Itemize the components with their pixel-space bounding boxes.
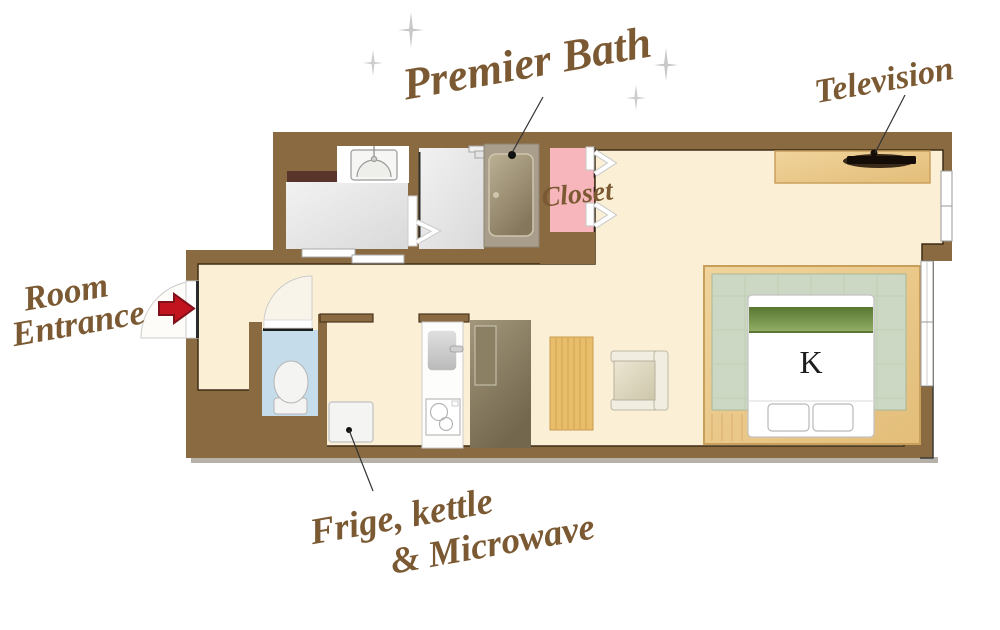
svg-text:Television: Television <box>812 50 957 111</box>
svg-text:Premier Bath: Premier Bath <box>398 17 655 110</box>
svg-text:K: K <box>799 344 822 380</box>
